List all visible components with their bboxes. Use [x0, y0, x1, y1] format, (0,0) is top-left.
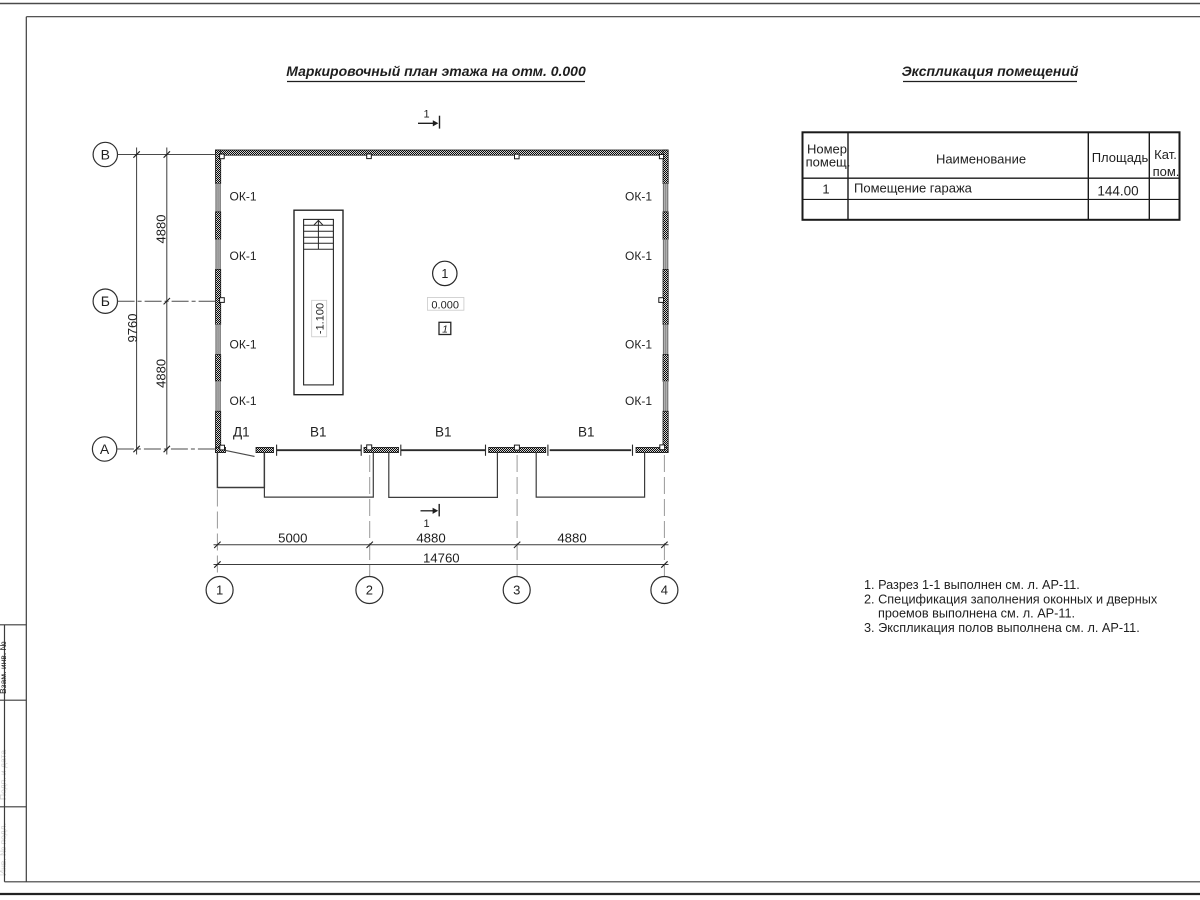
- svg-text:ОК-1: ОК-1: [625, 337, 652, 351]
- svg-text:Б: Б: [101, 293, 110, 309]
- svg-text:2. Спецификация заполнения око: 2. Спецификация заполнения оконных и две…: [864, 592, 1158, 606]
- svg-text:В1: В1: [578, 425, 595, 440]
- svg-text:3: 3: [513, 583, 520, 598]
- svg-text:9760: 9760: [125, 314, 140, 343]
- svg-text:В1: В1: [310, 425, 327, 440]
- svg-text:1: 1: [442, 324, 448, 336]
- svg-text:1: 1: [423, 518, 429, 530]
- svg-text:2: 2: [366, 583, 373, 598]
- svg-text:ОК-1: ОК-1: [625, 394, 652, 408]
- svg-text:ОК-1: ОК-1: [230, 394, 257, 408]
- svg-text:ОК-1: ОК-1: [230, 249, 257, 263]
- svg-text:Подп. и дата: Подп. и дата: [0, 750, 8, 800]
- svg-text:Экспликация помещений: Экспликация помещений: [902, 63, 1079, 79]
- svg-text:Наименование: Наименование: [936, 151, 1026, 166]
- svg-text:14760: 14760: [423, 551, 460, 566]
- svg-text:4880: 4880: [154, 359, 169, 388]
- svg-text:1: 1: [216, 583, 223, 598]
- svg-text:Взам. инв. №: Взам. инв. №: [0, 641, 8, 694]
- svg-text:4: 4: [661, 583, 668, 598]
- svg-text:пом.: пом.: [1153, 164, 1180, 179]
- svg-text:Кат.: Кат.: [1154, 147, 1177, 162]
- svg-text:ОК-1: ОК-1: [625, 249, 652, 263]
- svg-text:А: А: [100, 441, 110, 457]
- svg-text:1: 1: [822, 181, 829, 196]
- svg-text:4880: 4880: [416, 531, 445, 546]
- svg-text:0.000: 0.000: [431, 299, 459, 311]
- svg-text:1. Разрез 1-1 выполнен см. л.: 1. Разрез 1-1 выполнен см. л. АР-11.: [864, 578, 1080, 592]
- svg-text:помещ.: помещ.: [806, 155, 851, 170]
- svg-text:ОК-1: ОК-1: [230, 337, 257, 351]
- svg-text:ОК-1: ОК-1: [230, 189, 257, 203]
- svg-text:проемов выполнена см. л. АР-11: проемов выполнена см. л. АР-11.: [878, 607, 1075, 621]
- svg-text:1: 1: [423, 109, 429, 121]
- svg-text:В: В: [101, 147, 110, 163]
- svg-text:144.00: 144.00: [1097, 184, 1138, 199]
- svg-text:Д1: Д1: [233, 425, 250, 440]
- svg-text:-1.100: -1.100: [314, 303, 326, 334]
- svg-text:Площадь: Площадь: [1092, 150, 1149, 165]
- svg-text:Помещение гаража: Помещение гаража: [854, 181, 973, 196]
- svg-text:4880: 4880: [154, 215, 169, 244]
- svg-text:Маркировочный план этажа на от: Маркировочный план этажа на отм. 0.000: [286, 63, 586, 79]
- svg-text:3. Экспликация полов выполнена: 3. Экспликация полов выполнена см. л. АР…: [864, 621, 1140, 635]
- svg-text:1: 1: [441, 267, 448, 281]
- svg-text:ОК-1: ОК-1: [625, 189, 652, 203]
- svg-text:5000: 5000: [278, 531, 307, 546]
- svg-text:Инв. № подл.: Инв. № подл.: [0, 823, 8, 876]
- svg-text:В1: В1: [435, 425, 452, 440]
- svg-text:4880: 4880: [557, 531, 586, 546]
